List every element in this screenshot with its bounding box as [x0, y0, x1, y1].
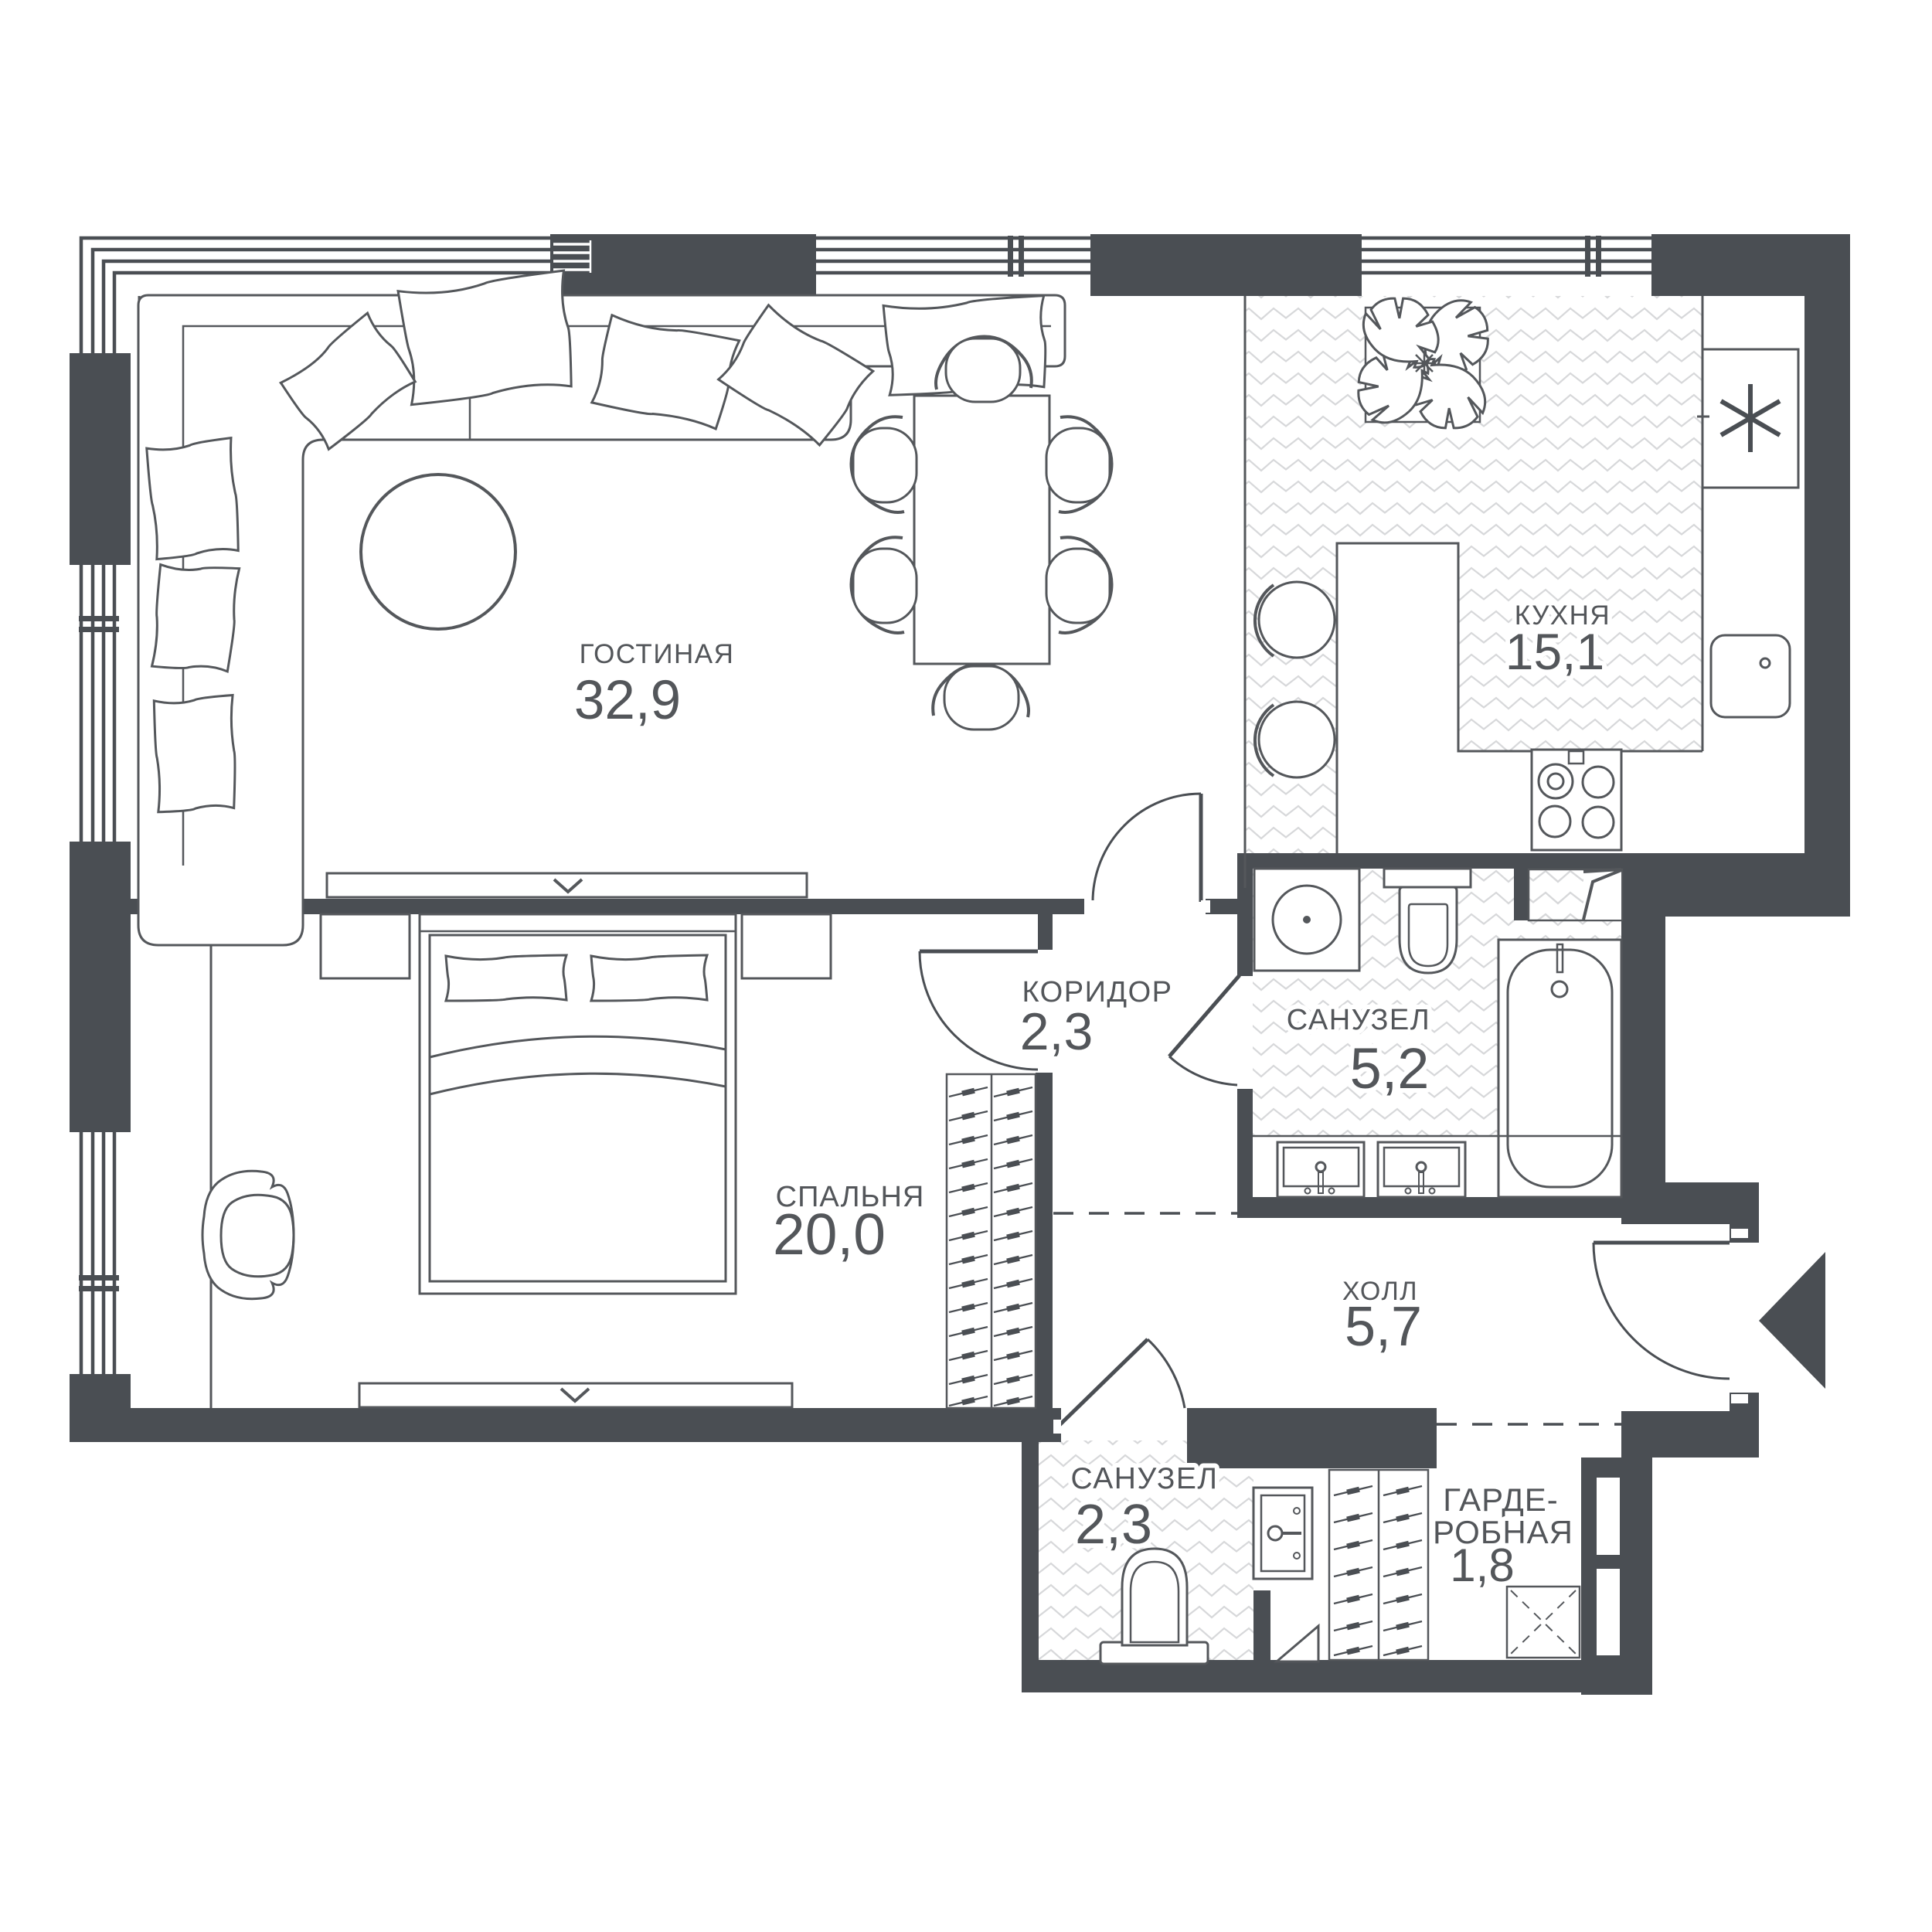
svg-text:САНУЗЕЛ: САНУЗЕЛ — [1070, 1462, 1218, 1495]
svg-text:ГОСТИНАЯ: ГОСТИНАЯ — [580, 639, 735, 669]
svg-text:5,2: 5,2 — [1350, 1036, 1430, 1100]
svg-text:САНУЗЕЛ: САНУЗЕЛ — [1287, 1004, 1430, 1036]
svg-text:32,9: 32,9 — [574, 670, 681, 731]
svg-text:ГАРДЕ-: ГАРДЕ- — [1443, 1481, 1559, 1518]
svg-text:2,3: 2,3 — [1075, 1494, 1152, 1556]
svg-text:5,7: 5,7 — [1345, 1296, 1422, 1358]
svg-text:20,0: 20,0 — [773, 1202, 886, 1267]
svg-text:1,8: 1,8 — [1450, 1539, 1514, 1591]
svg-text:2,3: 2,3 — [1020, 1002, 1094, 1061]
svg-text:15,1: 15,1 — [1505, 623, 1604, 680]
